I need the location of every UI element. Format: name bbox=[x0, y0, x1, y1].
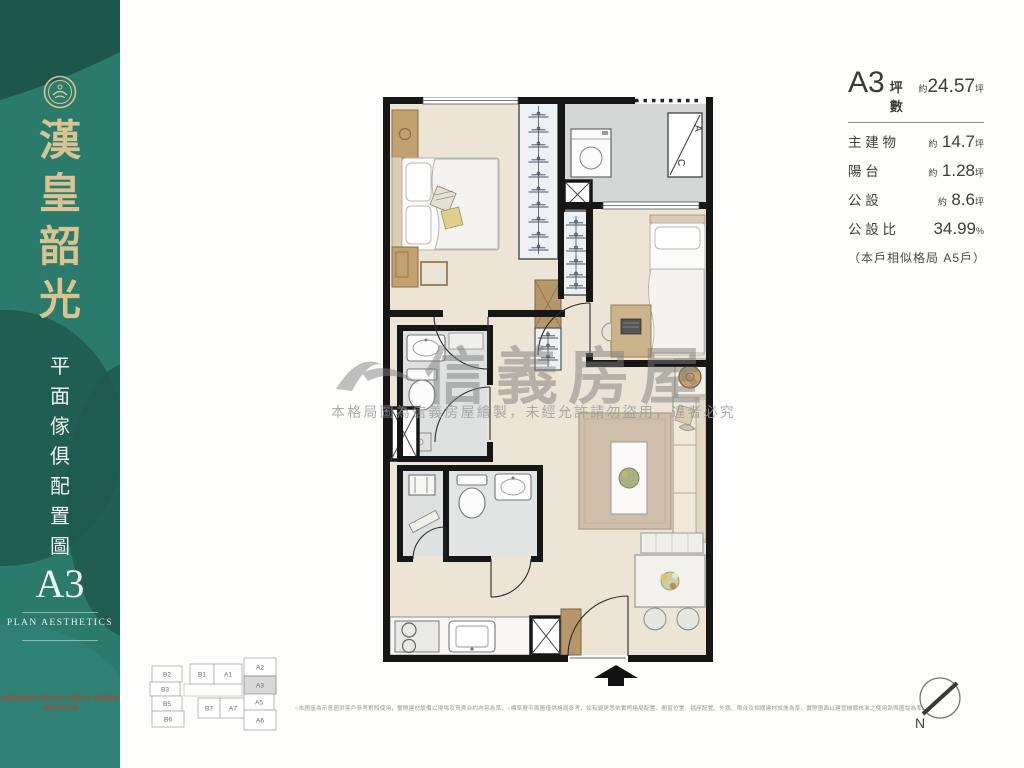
balcony-row: 陽 台 約 1.28坪 bbox=[848, 160, 984, 181]
pillow bbox=[406, 206, 431, 244]
similar-layout-note: （本戶相似格局 A5戶） bbox=[848, 249, 984, 266]
key-plan: B2B3B5B6B1A1B7A7A2A3A5A6 bbox=[148, 656, 280, 734]
divider bbox=[22, 640, 98, 641]
bedroom2-closet bbox=[563, 211, 589, 295]
kitchen-shaft bbox=[531, 617, 561, 655]
brand-char: 韶 bbox=[0, 222, 120, 275]
keyplan-corridor bbox=[184, 684, 242, 696]
pillow bbox=[655, 227, 700, 249]
keyplan-label: A2 bbox=[256, 664, 264, 671]
total-area-value: 24.57 bbox=[927, 76, 975, 97]
keyplan-label: A3 bbox=[256, 682, 264, 689]
keyplan-label: B1 bbox=[198, 671, 206, 678]
tagline: PLAN AESTHETICS bbox=[0, 618, 120, 628]
sofa bbox=[673, 397, 706, 542]
washing-machine bbox=[571, 129, 611, 177]
compass-needle bbox=[923, 683, 957, 714]
public-area-row: 公 設 約 8.6坪 bbox=[848, 189, 984, 210]
master-wardrobe bbox=[519, 101, 558, 259]
entry-arrow-icon bbox=[593, 664, 639, 688]
keyplan-label: B7 bbox=[205, 705, 213, 712]
headboard bbox=[392, 157, 402, 251]
entry-cabinet bbox=[561, 609, 581, 655]
brand-name-vertical: 漢 皇 韶 光 bbox=[0, 116, 120, 328]
keyplan-label: B6 bbox=[164, 716, 172, 723]
public-ratio-row: 公 設 比 34.99% bbox=[848, 218, 984, 239]
keyplan-label: B2 bbox=[163, 671, 171, 678]
brand-char: 漢 bbox=[0, 116, 120, 169]
north-compass: N bbox=[913, 676, 965, 732]
brand-sidebar: 漢 皇 韶 光 平 面 傢 俱 配 置 圖 A3 PLAN AESTHETICS… bbox=[0, 0, 120, 768]
area-info-panel: A3 坪 數 約24.57坪 主 建 物 約 14.7坪 陽 台 約 1.28坪… bbox=[848, 66, 984, 266]
water-heater bbox=[409, 475, 435, 495]
keyplan-label: B5 bbox=[163, 701, 171, 708]
main-building-row: 主 建 物 約 14.7坪 bbox=[848, 131, 984, 152]
disclaimer-text: ○本圖僅為示意圖供客戶參考對照使用，實際建材設備以現場及買賣合約內容為準。○標準… bbox=[295, 704, 935, 712]
unit-code: A3 bbox=[848, 66, 885, 100]
ac-unit: A C bbox=[668, 113, 703, 177]
bath-cabinet bbox=[449, 333, 483, 349]
laptop bbox=[621, 319, 641, 334]
duct-shaft bbox=[391, 408, 418, 460]
area-label: 坪 數 bbox=[890, 77, 919, 115]
toilet-tank bbox=[407, 369, 437, 380]
toilet2-bowl bbox=[459, 488, 485, 518]
keyplan-label: A5 bbox=[255, 699, 263, 706]
pillow bbox=[406, 163, 431, 201]
ac-label-a: A bbox=[692, 125, 703, 132]
stove bbox=[395, 621, 439, 652]
toilet2-tank bbox=[457, 475, 487, 485]
unit-code-label: A3 bbox=[0, 560, 120, 607]
floor-plan: A C bbox=[383, 97, 713, 662]
area-total-row: A3 坪 數 約24.57坪 bbox=[848, 66, 984, 123]
vent-grille bbox=[635, 99, 698, 103]
keyplan-label: B3 bbox=[161, 686, 169, 693]
keyplan-label: A7 bbox=[229, 705, 237, 712]
brand-char: 皇 bbox=[0, 169, 120, 222]
nightstand bbox=[392, 110, 418, 158]
toilet-bowl bbox=[409, 380, 435, 410]
coffee-table bbox=[611, 442, 647, 514]
brand-char: 光 bbox=[0, 275, 120, 328]
ac-label-c: C bbox=[675, 159, 686, 166]
brand-emblem-icon bbox=[42, 74, 78, 110]
keyplan-label: A6 bbox=[256, 717, 264, 724]
north-label: N bbox=[915, 715, 925, 731]
license-text: 信義房屋仲介(股)公司 代銷仲介 經紀業務 4864292046 bbox=[0, 694, 120, 714]
plan-subtitle-vertical: 平 面 傢 俱 配 置 圖 bbox=[0, 352, 120, 562]
headboard2 bbox=[650, 215, 705, 223]
keyplan-label: A1 bbox=[224, 671, 232, 678]
divider bbox=[22, 612, 98, 613]
